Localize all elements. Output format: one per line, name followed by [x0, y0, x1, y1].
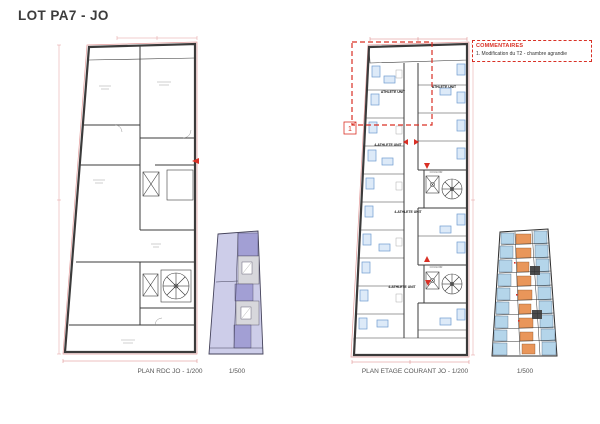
caption-key-etage-scale: 1/500 [495, 368, 555, 375]
spiral-stair-icon-etage-2 [442, 274, 462, 294]
key-plan-rdc [202, 224, 272, 364]
commentaires-item: 1. Modification du T2 - chambre agrandie [476, 51, 588, 57]
drawing-sheet: LOT PA7 - JO [0, 0, 600, 424]
revision-marker-number: 1 [348, 126, 352, 133]
revision-marker: 1 [344, 122, 356, 134]
label-4athlete-mid: 4-ATHLETE UNIT [394, 210, 422, 214]
building-outline-rdc [65, 44, 195, 352]
label-4athlete-top: 4-ATHLETE UNIT [374, 143, 402, 147]
label-athlete-unit-right: ATHLETE UNIT [432, 85, 457, 89]
plan-rdc-drawing [55, 30, 205, 370]
caption-plan-etage: PLAN ETAGE COURANT JO - 1/200 [345, 368, 485, 375]
label-couloir-top: COULOIR [430, 170, 443, 174]
key-plan-etage [486, 222, 564, 364]
commentaires-title: COMMENTAIRES [476, 43, 588, 49]
plan-etage-drawing: ATHLETE UNIT ATHLETE UNIT 4-ATHLETE UNIT… [336, 30, 476, 375]
key-rdc-block-2 [235, 284, 253, 301]
label-4athlete-bottom: 4-ATHLETE UNIT [388, 285, 416, 289]
page-title: LOT PA7 - JO [18, 8, 109, 23]
key-rdc-block-3 [234, 325, 251, 348]
caption-key-rdc-scale: 1/500 [207, 368, 267, 375]
label-couloir-bottom: COULOIR [430, 265, 443, 269]
spiral-stair-icon-etage-1 [442, 179, 462, 199]
label-athlete-unit-left: ATHLETE UNIT [381, 90, 406, 94]
commentaires-box: COMMENTAIRES 1. Modification du T2 - cha… [472, 40, 592, 62]
key-rdc-block-1 [238, 233, 258, 256]
